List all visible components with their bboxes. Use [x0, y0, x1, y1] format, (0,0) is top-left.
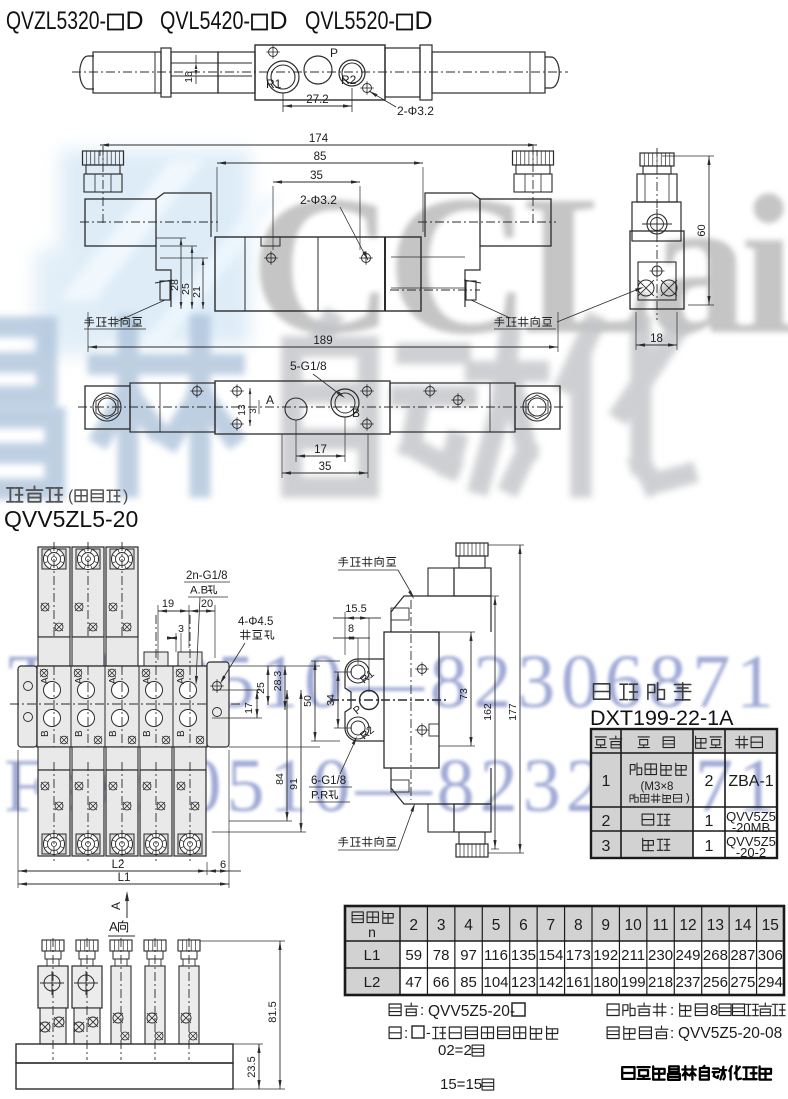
svg-text:QVL5420-: QVL5420- — [160, 7, 250, 35]
svg-text:ZBA-1: ZBA-1 — [728, 773, 773, 790]
svg-text:294: 294 — [758, 974, 783, 991]
svg-text:21: 21 — [191, 286, 203, 298]
svg-text:27.2: 27.2 — [306, 94, 328, 106]
svg-text:D: D — [270, 7, 288, 35]
svg-text::: : — [420, 1002, 424, 1019]
svg-text:1: 1 — [602, 773, 611, 790]
svg-text:): ) — [123, 488, 128, 505]
svg-text:25: 25 — [255, 682, 267, 694]
svg-text:n: n — [368, 924, 376, 940]
svg-text:17: 17 — [243, 702, 255, 714]
svg-text:QVZL5320-: QVZL5320- — [6, 7, 106, 35]
svg-text:19: 19 — [162, 598, 174, 610]
svg-text:135: 135 — [511, 947, 536, 964]
svg-text:P.R: P.R — [311, 789, 328, 801]
svg-text:L1: L1 — [364, 947, 381, 964]
svg-text:35: 35 — [319, 461, 332, 473]
svg-text:6: 6 — [519, 917, 528, 934]
svg-text:17: 17 — [314, 444, 327, 456]
svg-text:): ) — [686, 792, 690, 804]
svg-text:180: 180 — [593, 974, 618, 991]
svg-text:162: 162 — [482, 703, 494, 721]
svg-text:154: 154 — [538, 947, 563, 964]
svg-text:5: 5 — [492, 917, 501, 934]
svg-text:-20-2: -20-2 — [736, 845, 766, 860]
svg-text:A: A — [40, 677, 51, 684]
svg-text:(: ( — [68, 488, 74, 505]
svg-text:A: A — [74, 677, 85, 684]
svg-text:L2: L2 — [364, 974, 381, 991]
svg-text:14: 14 — [734, 917, 752, 934]
svg-text:10: 10 — [625, 917, 643, 934]
svg-text:QVL5520-: QVL5520- — [305, 7, 395, 35]
svg-text:3: 3 — [248, 408, 259, 413]
svg-text:9: 9 — [601, 917, 610, 934]
svg-text:66: 66 — [433, 974, 450, 991]
svg-text:R2: R2 — [341, 73, 357, 87]
svg-text::: : — [404, 1025, 408, 1042]
svg-text:(M3×8: (M3×8 — [641, 781, 674, 793]
svg-text:34: 34 — [325, 694, 337, 706]
svg-text:1: 1 — [705, 813, 714, 830]
svg-text:D: D — [126, 7, 144, 35]
svg-text:177: 177 — [507, 703, 519, 721]
svg-text:QVV5Z5-20-08: QVV5Z5-20-08 — [678, 1025, 782, 1042]
svg-text:13: 13 — [237, 404, 248, 416]
svg-text:L1: L1 — [118, 872, 131, 884]
svg-text:97: 97 — [460, 947, 477, 964]
svg-text:6-G1/8: 6-G1/8 — [311, 775, 346, 787]
svg-text:8: 8 — [574, 917, 583, 934]
svg-text:QVV5Z5-20-: QVV5Z5-20- — [428, 1003, 515, 1020]
svg-text:1: 1 — [705, 838, 714, 855]
svg-text:192: 192 — [593, 947, 618, 964]
svg-text:189: 189 — [313, 335, 332, 347]
svg-text:A: A — [108, 677, 119, 684]
svg-text:84: 84 — [274, 773, 286, 785]
svg-text:8: 8 — [710, 1002, 718, 1019]
svg-text:142: 142 — [538, 974, 563, 991]
svg-text:256: 256 — [703, 974, 728, 991]
svg-text:15.5: 15.5 — [345, 603, 366, 615]
svg-text:4-Φ4.5: 4-Φ4.5 — [238, 616, 273, 628]
svg-text:12: 12 — [679, 917, 696, 934]
svg-text:50: 50 — [302, 695, 314, 707]
svg-text:230: 230 — [648, 947, 673, 964]
svg-text::: : — [670, 1002, 674, 1019]
svg-text:123: 123 — [511, 974, 536, 991]
svg-text::: : — [670, 1025, 674, 1042]
svg-text:218: 218 — [648, 974, 673, 991]
svg-text:L2: L2 — [112, 859, 125, 871]
svg-text:2n-G1/8: 2n-G1/8 — [186, 570, 228, 582]
svg-text:16: 16 — [183, 71, 195, 83]
svg-text:18: 18 — [650, 333, 663, 345]
svg-text:60: 60 — [696, 224, 708, 236]
svg-text:-20MB: -20MB — [732, 820, 770, 835]
svg-text:7: 7 — [547, 917, 556, 934]
svg-text:199: 199 — [621, 974, 646, 991]
svg-text:275: 275 — [730, 974, 755, 991]
svg-text:47: 47 — [405, 974, 422, 991]
svg-text:15=15: 15=15 — [440, 1076, 482, 1093]
svg-text:15: 15 — [762, 917, 779, 934]
svg-text:161: 161 — [566, 974, 591, 991]
svg-text:2-Φ3.2: 2-Φ3.2 — [397, 104, 434, 118]
svg-text:5-G1/8: 5-G1/8 — [290, 359, 327, 373]
svg-text:85: 85 — [460, 974, 477, 991]
svg-text:174: 174 — [309, 133, 329, 145]
svg-text:B: B — [176, 730, 187, 737]
svg-text:268: 268 — [703, 947, 728, 964]
svg-text:A: A — [109, 902, 123, 910]
svg-text:2-Φ3.2: 2-Φ3.2 — [300, 193, 337, 207]
svg-text:P: P — [330, 46, 338, 60]
svg-text:DXT199-22-1A: DXT199-22-1A — [590, 706, 734, 730]
svg-text:QVV5ZL5-20: QVV5ZL5-20 — [4, 506, 138, 532]
svg-text:13: 13 — [707, 917, 724, 934]
svg-text:237: 237 — [675, 974, 700, 991]
svg-text:116: 116 — [484, 947, 508, 964]
svg-text:B: B — [352, 406, 360, 420]
svg-text:4: 4 — [464, 917, 473, 934]
svg-text:85: 85 — [314, 151, 327, 163]
svg-text:287: 287 — [730, 947, 755, 964]
svg-text:2: 2 — [602, 813, 611, 830]
svg-text:8: 8 — [348, 623, 354, 635]
svg-text:3: 3 — [178, 623, 184, 635]
svg-text:104: 104 — [483, 974, 508, 991]
svg-text:78: 78 — [433, 947, 450, 964]
svg-text:173: 173 — [566, 947, 591, 964]
svg-text:A: A — [266, 393, 274, 407]
svg-text:249: 249 — [675, 947, 700, 964]
svg-text:3: 3 — [437, 917, 446, 934]
svg-text:D: D — [415, 7, 433, 35]
svg-text:11: 11 — [653, 917, 669, 934]
svg-text:A: A — [109, 919, 118, 934]
svg-text:2: 2 — [705, 773, 714, 790]
svg-text:B: B — [40, 730, 51, 737]
svg-text:20: 20 — [201, 598, 213, 610]
svg-text:23.5: 23.5 — [246, 1056, 258, 1077]
svg-text:-: - — [426, 1024, 431, 1040]
svg-text:306: 306 — [758, 947, 783, 964]
svg-text:81.5: 81.5 — [267, 1001, 279, 1022]
svg-text:28.3: 28.3 — [272, 671, 284, 692]
svg-text:R1: R1 — [266, 77, 282, 91]
svg-text:A: A — [176, 677, 187, 684]
svg-text:B: B — [142, 730, 153, 737]
svg-text:02=2: 02=2 — [438, 1042, 472, 1059]
svg-text:59: 59 — [405, 947, 422, 964]
svg-text:91: 91 — [288, 778, 300, 790]
svg-text:211: 211 — [621, 947, 645, 964]
svg-text:35: 35 — [310, 170, 323, 182]
svg-text:3: 3 — [602, 838, 611, 855]
svg-text:B: B — [74, 730, 85, 737]
svg-text:A.B: A.B — [190, 584, 208, 596]
svg-text:2: 2 — [409, 917, 418, 934]
svg-text:A: A — [142, 677, 153, 684]
svg-text:B: B — [108, 730, 119, 737]
svg-text:73: 73 — [458, 688, 470, 700]
svg-text:6: 6 — [220, 859, 226, 871]
